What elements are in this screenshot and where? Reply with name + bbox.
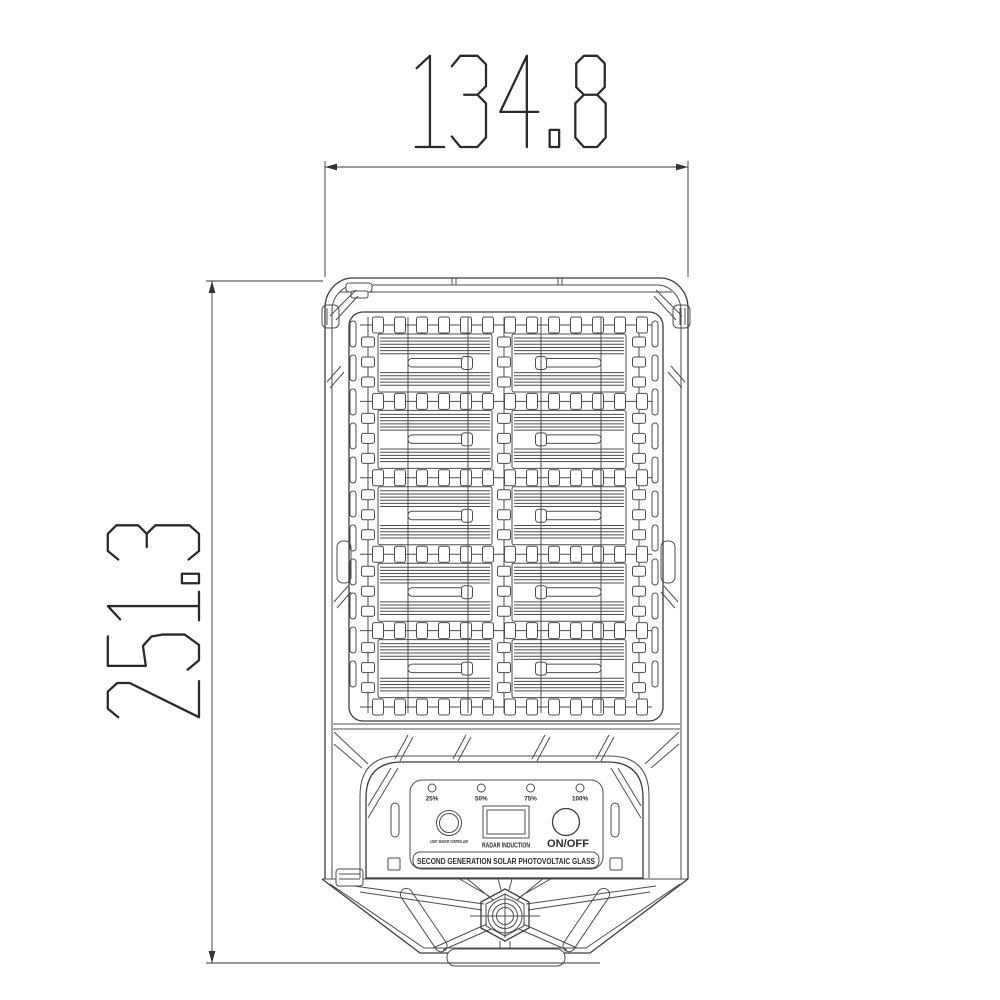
dimension-width (325, 56, 688, 277)
banner-label: SECOND GENERATION SOLAR PHOTOVOLTAIC GLA… (417, 856, 595, 866)
control-module: 25% 50% 75% 100% LIGHT SENSOR CONTROLLER… (360, 756, 649, 878)
light-sensor-label: LIGHT SENSOR CONTROLLER (430, 839, 468, 844)
power-label: ON/OFF (547, 838, 589, 850)
battery-level-label-75: 75% (524, 796, 537, 803)
technical-drawing-canvas: 25% 50% 75% 100% LIGHT SENSOR CONTROLLER… (0, 0, 1000, 1000)
solar-panel (349, 312, 663, 721)
mounting-bracket (322, 877, 688, 966)
battery-level-label-50: 50% (475, 796, 488, 803)
battery-level-label-100: 100% (572, 796, 589, 803)
solar-light-technical-drawing: 25% 50% 75% 100% LIGHT SENSOR CONTROLLER… (0, 0, 1000, 1000)
radar-label: RADAR INDUCTION (482, 843, 530, 850)
height-dimension-text (108, 525, 199, 717)
battery-level-label-25: 25% (426, 796, 439, 803)
vent-slashes (395, 735, 614, 761)
width-dimension-text (416, 56, 606, 147)
solar-cell-grid (350, 317, 658, 715)
bottom-clip (336, 869, 363, 886)
